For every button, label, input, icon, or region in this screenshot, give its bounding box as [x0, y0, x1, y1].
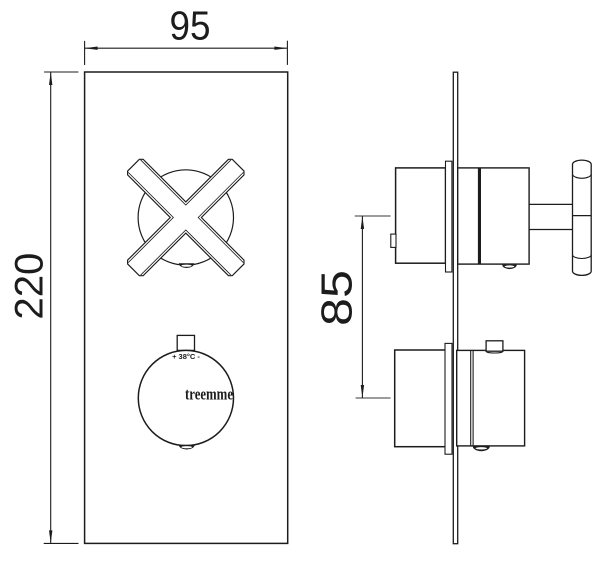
svg-text:95: 95: [170, 3, 211, 49]
svg-text:+ 38°C -: + 38°C -: [172, 352, 200, 361]
svg-text:treemme: treemme: [185, 385, 233, 404]
svg-text:85: 85: [313, 270, 362, 326]
svg-text:220: 220: [8, 253, 52, 320]
